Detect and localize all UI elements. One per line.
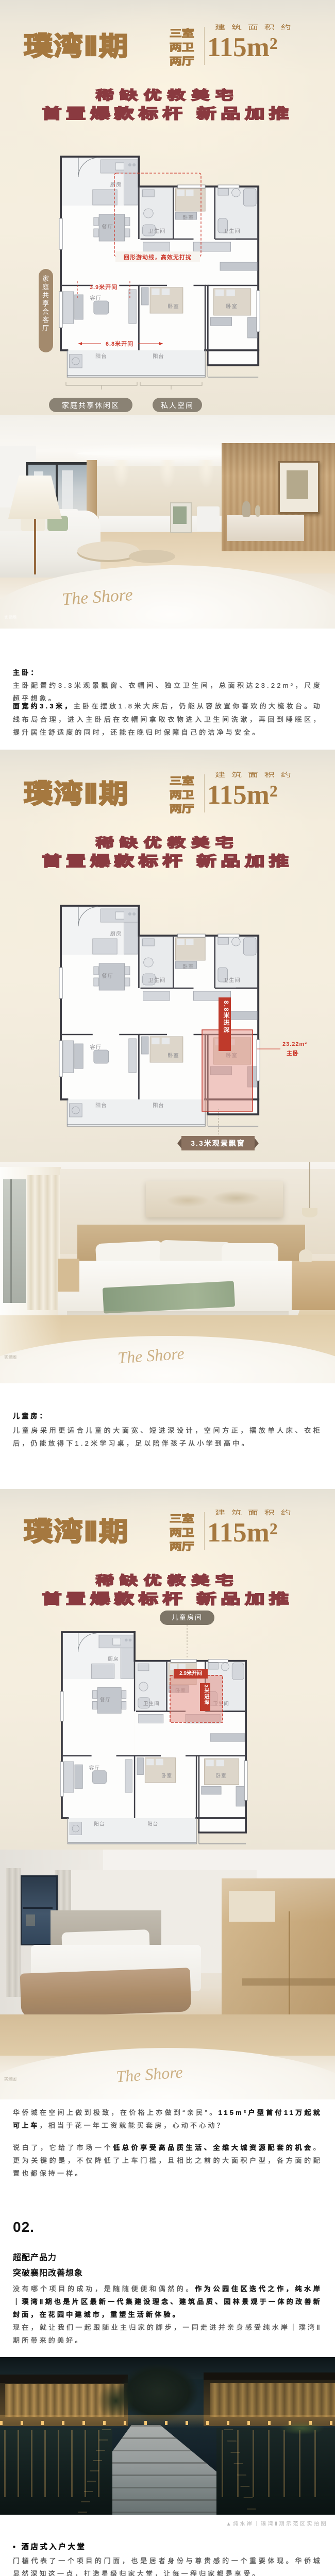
svg-text:3.9米开间: 3.9米开间 — [90, 283, 118, 291]
svg-text:私人空间: 私人空间 — [161, 401, 194, 410]
svg-text:主卧: 主卧 — [287, 1049, 299, 1057]
svg-text:家庭共享休闲区: 家庭共享休闲区 — [62, 401, 120, 410]
svg-text:6.8米开间: 6.8米开间 — [106, 340, 133, 347]
svg-text:回形游动线，高效无打扰: 回形游动线，高效无打扰 — [124, 253, 192, 261]
svg-text:23.22m²: 23.22m² — [282, 1041, 307, 1047]
